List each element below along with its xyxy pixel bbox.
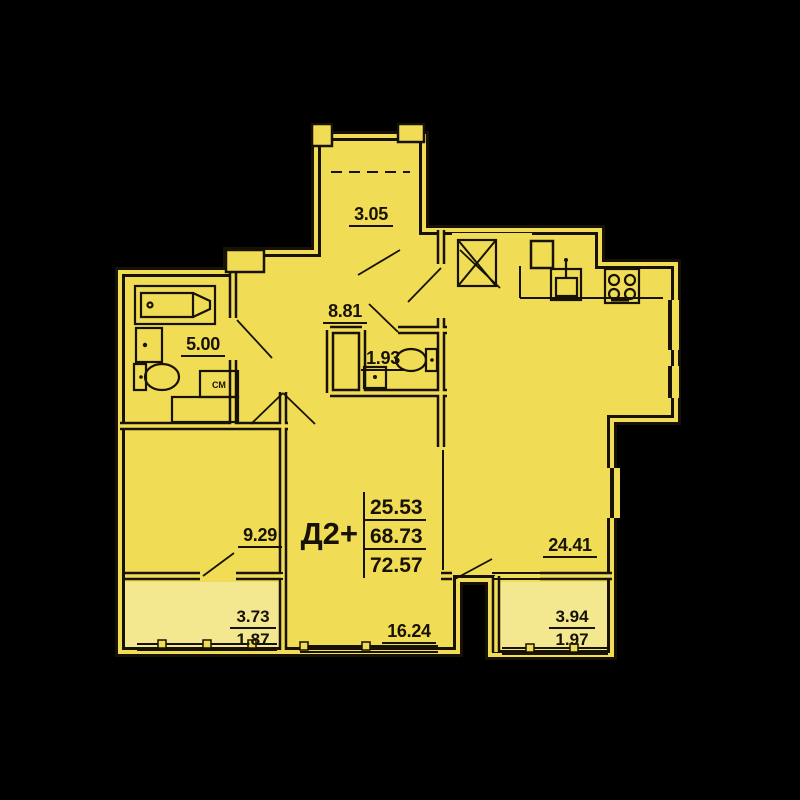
label-kitchen-living: 24.41 — [548, 535, 592, 555]
label-balcony-left-fraction: 3.73 1.87 — [230, 607, 276, 649]
label-wc: 1.93 — [366, 348, 400, 368]
label-bedroom-left: 9.29 — [243, 525, 277, 545]
window-tick — [203, 640, 211, 648]
stat-value-2: 68.73 — [370, 525, 423, 548]
floorplan-canvas: 3.05 8.81 1.93 5.00 9.29 16.24 24.41 3.7… — [0, 0, 800, 800]
label-bathroom: 5.00 — [186, 334, 220, 354]
stat-value-3: 72.57 — [370, 554, 423, 577]
balcony-right-area-coeff: 1.97 — [555, 630, 588, 649]
balcony-parapet-block-right — [398, 124, 424, 142]
balcony-parapet-block-left — [312, 124, 332, 146]
pillar-top-left — [226, 250, 264, 272]
window-right-1 — [668, 300, 672, 350]
floorplan-svg: 3.05 8.81 1.93 5.00 9.29 16.24 24.41 3.7… — [0, 0, 800, 800]
window-tick — [158, 640, 166, 648]
pillar-entrance — [531, 241, 553, 268]
label-hallway: 8.81 — [328, 301, 362, 321]
unit-code: Д2+ — [301, 516, 358, 551]
window-tick — [362, 642, 370, 650]
window-tick — [526, 644, 534, 652]
label-balcony-top: 3.05 — [354, 204, 388, 224]
window-right-3 — [610, 468, 614, 518]
window-right-2 — [668, 366, 672, 398]
balcony-left-area: 3.73 — [236, 607, 269, 626]
balcony-left-area-coeff: 1.87 — [236, 630, 269, 649]
label-balcony-right-fraction: 3.94 1.97 — [549, 607, 595, 649]
washing-machine-label: СМ — [212, 380, 226, 390]
balcony-right-area: 3.94 — [555, 607, 589, 626]
stat-value-1: 25.53 — [370, 496, 423, 519]
window-tick — [300, 642, 308, 650]
label-room-center: 16.24 — [387, 621, 431, 641]
balcony-right-floor — [494, 582, 609, 651]
entrance-opening — [452, 233, 532, 243]
